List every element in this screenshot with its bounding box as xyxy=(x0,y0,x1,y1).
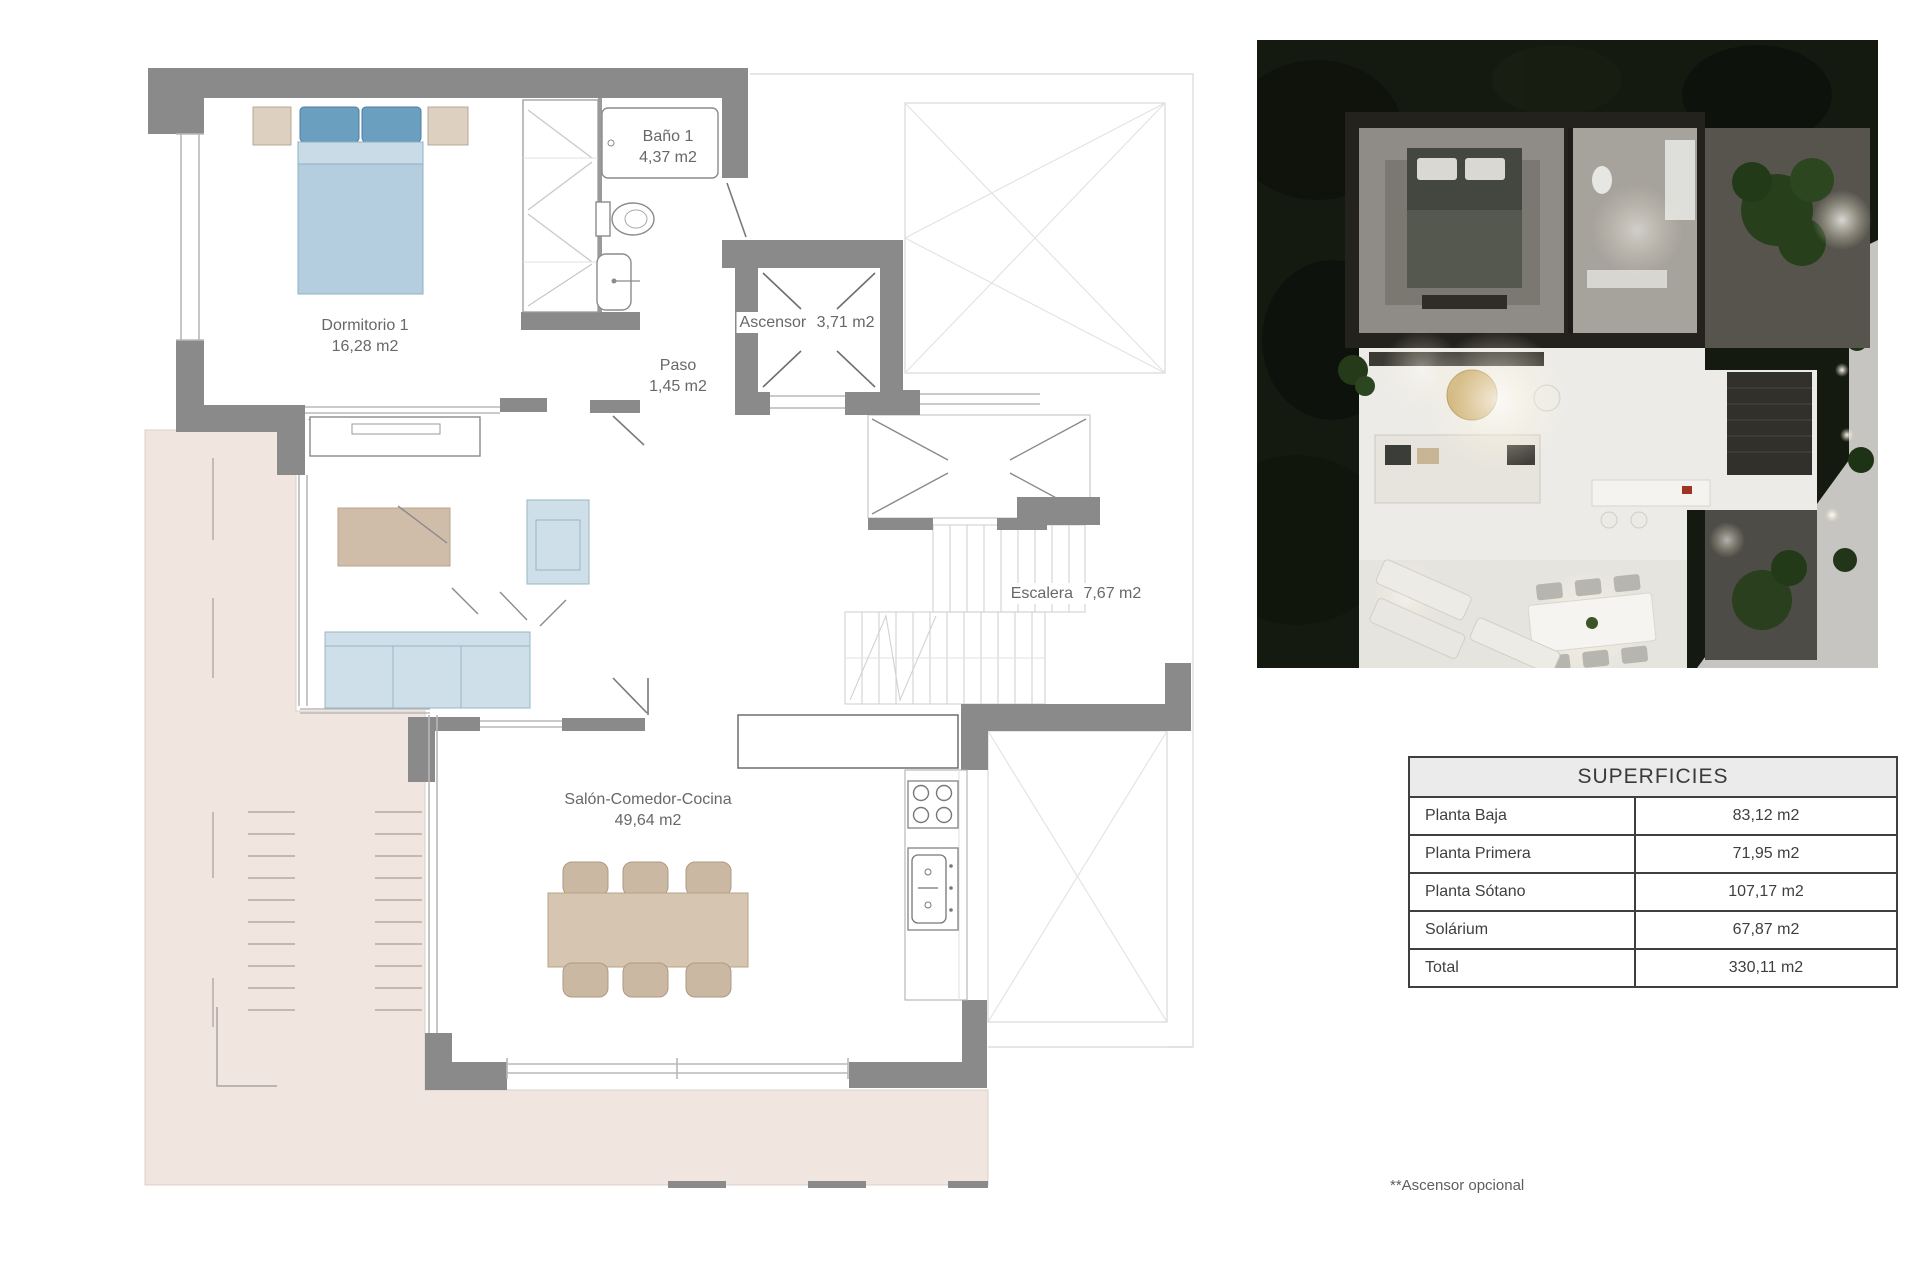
footnote: **Ascensor opcional xyxy=(1390,1177,1524,1194)
dining-chair xyxy=(686,963,731,997)
bed-pillow xyxy=(362,107,421,142)
surfaces-table-title: SUPERFICIES xyxy=(1410,758,1896,798)
bath-sink xyxy=(597,254,640,310)
dining-set xyxy=(548,862,748,997)
dining-chair xyxy=(623,963,668,997)
living-furniture xyxy=(310,417,589,708)
bedroom-furniture xyxy=(253,100,598,312)
page: Dormitorio 1 16,28 m2 Baño 1 4,37 m2 Pas… xyxy=(0,0,1920,1280)
label-escalera: Escalera 7,67 m2 xyxy=(1008,583,1145,604)
sofa xyxy=(325,632,530,708)
room-name: Salón-Comedor-Cocina xyxy=(564,789,731,810)
table-row: Planta Baja 83,12 m2 xyxy=(1410,798,1896,836)
room-name: Escalera xyxy=(1008,583,1076,604)
room-area: 4,37 m2 xyxy=(639,147,697,168)
kitchen-sink xyxy=(908,848,958,930)
armchair xyxy=(500,500,589,620)
render-house xyxy=(1338,112,1872,668)
row-label: Planta Baja xyxy=(1410,798,1636,834)
label-bano: Baño 1 4,37 m2 xyxy=(639,126,697,168)
dining-chair xyxy=(623,862,668,896)
row-value: 107,17 m2 xyxy=(1636,874,1896,910)
nightstand xyxy=(253,107,291,145)
stove xyxy=(908,781,958,828)
wardrobe xyxy=(523,100,598,312)
roof-outline xyxy=(750,74,1193,1047)
rug xyxy=(338,506,450,566)
label-salon: Salón-Comedor-Cocina 49,64 m2 xyxy=(564,789,731,831)
table-row: Solárium 67,87 m2 xyxy=(1410,912,1896,950)
room-area: 49,64 m2 xyxy=(564,810,731,831)
room-name: Dormitorio 1 xyxy=(321,315,408,336)
row-value: 83,12 m2 xyxy=(1636,798,1896,834)
room-area: 16,28 m2 xyxy=(321,336,408,357)
row-label: Solárium xyxy=(1410,912,1636,948)
label-paso: Paso 1,45 m2 xyxy=(649,355,707,397)
kitchen xyxy=(738,715,967,1000)
plant-marks xyxy=(452,588,566,626)
room-name: Ascensor xyxy=(737,312,810,333)
tv-console xyxy=(310,417,480,456)
room-name: Paso xyxy=(649,355,707,376)
dining-chair xyxy=(563,862,608,896)
label-ascensor: Ascensor 3,71 m2 xyxy=(737,312,878,333)
row-label: Planta Primera xyxy=(1410,836,1636,872)
render-image xyxy=(1257,40,1878,668)
toilet xyxy=(596,202,654,236)
row-value: 71,95 m2 xyxy=(1636,836,1896,872)
room-area: 3,71 m2 xyxy=(814,312,878,333)
dining-chair xyxy=(563,963,608,997)
table-row: Total 330,11 m2 xyxy=(1410,950,1896,986)
row-value: 330,11 m2 xyxy=(1636,950,1896,986)
table-row: Planta Primera 71,95 m2 xyxy=(1410,836,1896,874)
render-stairs xyxy=(1727,372,1812,475)
kitchen-island xyxy=(738,715,958,768)
staircase xyxy=(845,525,1085,704)
nightstand xyxy=(428,107,468,145)
table-row: Planta Sótano 107,17 m2 xyxy=(1410,874,1896,912)
row-label: Planta Sótano xyxy=(1410,874,1636,910)
surfaces-table: SUPERFICIES Planta Baja 83,12 m2 Planta … xyxy=(1408,756,1898,988)
bed-sheet xyxy=(298,142,423,164)
room-area: 7,67 m2 xyxy=(1080,583,1144,604)
dining-chair xyxy=(686,862,731,896)
bed-pillow xyxy=(300,107,359,142)
dining-table xyxy=(548,893,748,967)
label-dormitorio: Dormitorio 1 16,28 m2 xyxy=(321,315,408,357)
row-label: Total xyxy=(1410,950,1636,986)
row-value: 67,87 m2 xyxy=(1636,912,1896,948)
bed xyxy=(298,164,423,294)
room-name: Baño 1 xyxy=(639,126,697,147)
room-area: 1,45 m2 xyxy=(649,376,707,397)
